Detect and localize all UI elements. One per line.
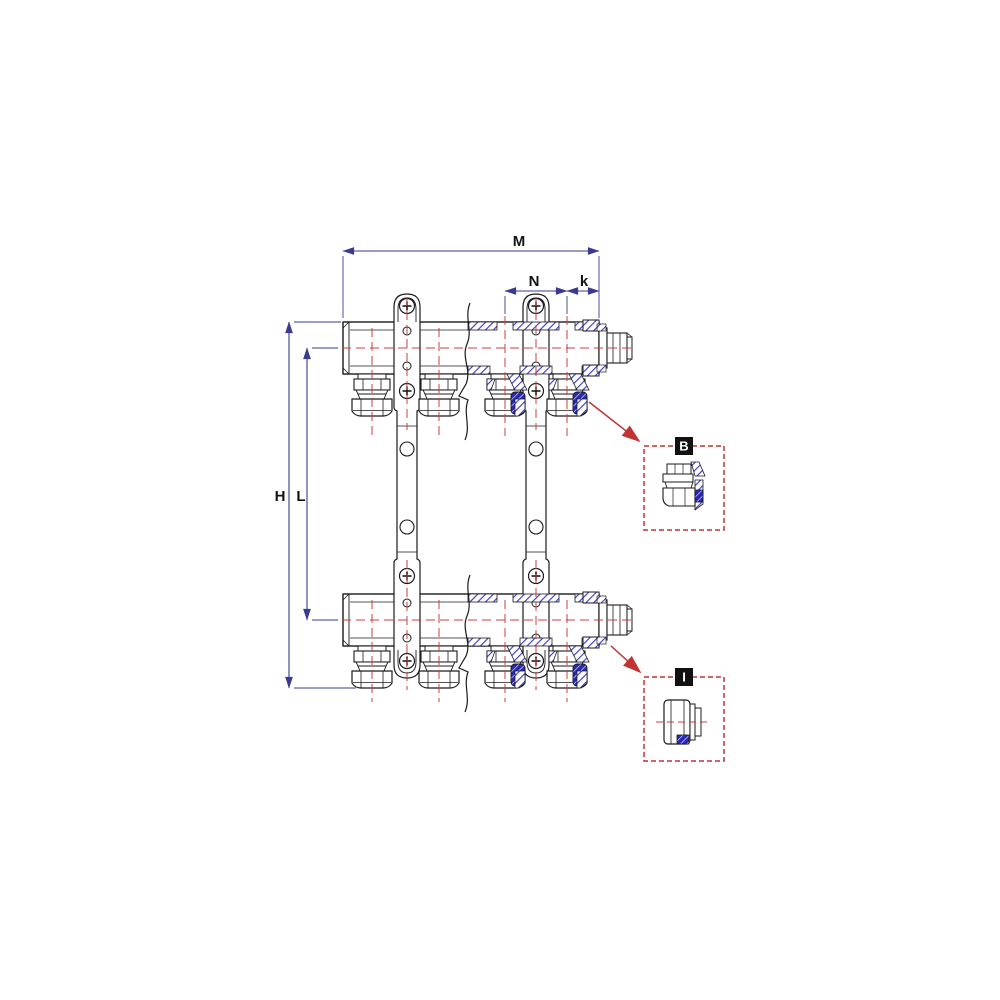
manifold-diagram: M N k H L B: [0, 0, 1000, 1000]
leader-arrow-i: [611, 646, 640, 672]
dim-label-n: N: [529, 273, 540, 290]
detail-label-i: I: [682, 670, 686, 685]
outlet-fittings-bottom: [352, 646, 589, 688]
drawing-canvas: M N k H L B: [0, 0, 1000, 1000]
dim-label-k: k: [580, 273, 589, 290]
detail-callout-b: B: [589, 402, 724, 530]
detail-drawing-b: [663, 462, 705, 510]
detail-label-b: B: [679, 439, 688, 454]
dim-label-l: L: [296, 488, 305, 505]
dim-label-h: H: [275, 488, 286, 505]
leader-arrow-b: [589, 402, 639, 441]
dimension-k: k: [567, 273, 599, 291]
dimension-l: L: [296, 348, 307, 620]
dim-label-m: M: [513, 233, 526, 250]
outlet-fittings-top: [352, 374, 589, 416]
detail-callout-i: I: [611, 646, 724, 761]
dimension-n: N: [505, 273, 567, 291]
dimension-m: M: [343, 233, 599, 251]
detail-drawing-i: [656, 700, 708, 744]
dimension-h: H: [275, 322, 289, 688]
